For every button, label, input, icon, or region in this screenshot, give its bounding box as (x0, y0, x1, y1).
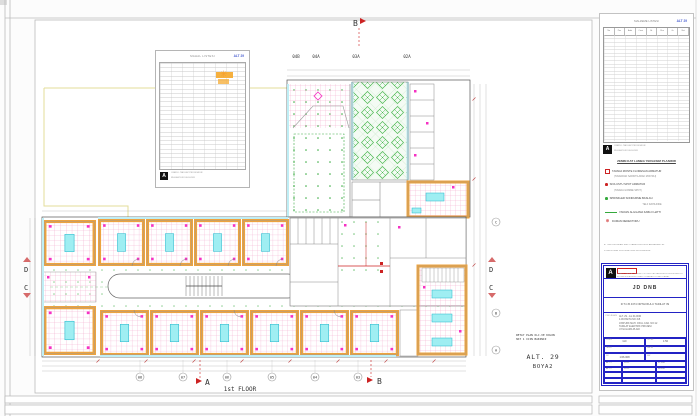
approval-line: BU PAFTA IDARENIN ONAYI OLMADAN COGALTIL… (617, 276, 683, 279)
tb-cell: NO1:06.008 (604, 353, 645, 361)
legend-item: YANGIN ALGILAMA KABLO HATTI (605, 211, 690, 214)
tb-cell: TARIH (604, 346, 645, 354)
plan-note-2: HAT 1 ICIN BAKINIZ (516, 337, 547, 341)
svg-text:08: 08 (138, 375, 142, 379)
svg-text:C: C (489, 284, 493, 292)
project-address-label: PROJE ADI (604, 313, 619, 337)
col-header: Gr (668, 28, 679, 35)
stamp-note: ONAYLI: TADILAT PROJESIDIR (614, 145, 690, 148)
tb-cell: CIZENGD (604, 338, 645, 346)
tb-cell: OLCEK1:50 (645, 338, 686, 346)
stamp-logo-icon: A (603, 145, 612, 154)
svg-text:07: 07 (181, 375, 185, 379)
svg-text:03A: 03A (352, 54, 360, 59)
tb-cell-value: GD (623, 340, 627, 343)
section-triangle-icon (23, 293, 31, 298)
tb-cell-label: OLCEK (647, 339, 653, 341)
sprinkler-icon (605, 197, 608, 200)
tb-cell-label: KAT (647, 355, 651, 357)
classroom (302, 312, 348, 355)
classroom (45, 222, 95, 265)
material-schedule-table: No Poz Adet Cinsi Br Olcu Gr Not (603, 27, 690, 143)
material-schedule-rows (604, 35, 689, 141)
upper-block (287, 80, 470, 217)
col-header: Olcu (657, 28, 668, 35)
title-block: A ONAYLI: TADILAT TESISAT PROJESI KAPSAM… (601, 263, 689, 386)
small-room (400, 310, 418, 356)
highlighted-cell (218, 79, 229, 84)
legend-heading: ZEMIN KAT LAMBA YERLESIM PLANIDIR (600, 159, 693, 163)
project-name: R.T.C.B 4374 ORTAOKULU TADILAT ISI (604, 298, 686, 313)
stamp-note: RUHSAT EKI DEGILDIR (171, 177, 243, 180)
col-header: No (604, 28, 615, 35)
room-schedule-rows (159, 62, 246, 170)
tb-cell: KAT (645, 353, 686, 361)
stamp-note: ONAYLI: TADILAT PROJESIDIR (171, 172, 243, 175)
service-rooms (352, 182, 408, 217)
footer-strips (5, 396, 692, 414)
legend-item-label: TAVANA MONTE FLORESAN ARMATUR (612, 170, 661, 173)
stamp-logo-icon: A (160, 172, 168, 180)
legend-item: TAVANA MONTE FLORESAN ARMATUR (605, 169, 690, 174)
svg-text:04B: 04B (292, 54, 300, 59)
svg-text:C: C (495, 220, 497, 224)
svg-text:04: 04 (313, 375, 317, 379)
stamp-note: RUHSAT EKI DEGILDIR (614, 150, 690, 153)
general-note: b. DETAYLAR ICIN ILGILI PAFTAYA BAKINIZ. (604, 250, 690, 252)
svg-text:C: C (24, 284, 28, 292)
svg-text:03: 03 (356, 375, 360, 379)
legend-item: SPRINKLER SONDURME BASLIGI (605, 197, 690, 200)
legend-item-label: SPRINKLER SONDURME BASLIGI (610, 197, 653, 200)
right-panel: MALZEME LISTESI ALT 29 No Poz Adet Cinsi… (599, 13, 694, 391)
firm-name: JD DNB (604, 279, 686, 297)
material-schedule-code: ALT 29 (677, 19, 687, 23)
fluorescent-fixture-icon (605, 169, 610, 174)
tb-cell-label: NO (606, 355, 609, 357)
classroom (352, 312, 398, 355)
legend-item-sub: TELF DAHILINDE (614, 203, 690, 206)
col-header: Adet (625, 28, 636, 35)
tall-room-right (418, 266, 466, 354)
legend-item-label: DUMAN DEDEKTORU (612, 220, 639, 223)
address-line: UYGULAMA PLANI (619, 328, 686, 331)
side-rooms-strip (410, 84, 434, 180)
revision-table: ALT 1 09.21 07.008 ALT 2 09.21 08.008 (604, 361, 686, 383)
title-block-header: A ONAYLI: TADILAT TESISAT PROJESI KAPSAM… (604, 266, 686, 279)
classroom (244, 221, 288, 265)
legend-item-label: SIVA USTU SPOT ARMATUR (610, 183, 646, 186)
legend-item-sub: (TAVANDAN SARKITILARAK MONTAJ) (614, 175, 690, 178)
col-header: Not (678, 28, 689, 35)
lower-wing (42, 217, 466, 357)
alt-sub: BOYA2 (533, 364, 554, 370)
alt-code: ALT. 29 (527, 353, 560, 361)
firm-logo-icon: A (606, 268, 616, 278)
svg-text:04A: 04A (312, 54, 320, 59)
legend-item: ⊕ DUMAN DEDEKTORU (605, 219, 690, 223)
svg-text:06: 06 (225, 375, 229, 379)
drawing-sheet: B A B D C D C 04B 04A 03A 02A 0 (0, 0, 700, 416)
svg-text:02A: 02A (403, 54, 411, 59)
rev-cell (604, 378, 622, 383)
orange-room-right (408, 182, 468, 217)
svg-text:05: 05 (270, 375, 274, 379)
diamond-ceiling-hall (351, 82, 409, 180)
col-header: Br (647, 28, 658, 35)
svg-text:B: B (377, 377, 382, 386)
revision-star-icon: ✳ (220, 70, 228, 79)
legend-item-sub: (TAVANA GOMME SPOT) (614, 189, 690, 192)
col-header: Poz (615, 28, 626, 35)
title-block-cells: CIZENGD OLCEK1:50 TARIH PAFTA NO1:06.008… (604, 338, 686, 362)
tb-cell-value: 1:06.008 (619, 356, 629, 359)
classroom (102, 312, 148, 355)
section-marker-left-dc: D C (23, 257, 31, 298)
tb-cell-label: CIZEN (606, 339, 612, 341)
floor-label: 1st FLOOR (224, 386, 257, 393)
section-triangle-icon (23, 257, 31, 262)
classroom (152, 312, 198, 355)
general-note: a. TUM OLCULER SANTIYEDE KONTROL EDILECE… (604, 244, 690, 246)
rev-cell (656, 378, 686, 383)
spot-fixture-icon (605, 183, 608, 186)
rev-cell (622, 378, 656, 383)
legend-item-label: YANGIN ALGILAMA KABLO HATTI (619, 211, 661, 214)
svg-text:D: D (24, 266, 28, 274)
col-header: Cinsi (636, 28, 647, 35)
cable-line-icon (605, 212, 617, 213)
room-schedule-table: MAHAL LISTESI ALT 29 ✳ A ONAYLI: TADILAT… (155, 50, 250, 188)
tb-cell-label: TARIH (606, 347, 612, 349)
legend-item: SIVA USTU SPOT ARMATUR (605, 183, 690, 186)
svg-text:B: B (495, 311, 497, 315)
project-address: PROJE ADI ALT. 29 - 1st FLOOR 4.06 PAFTA… (604, 313, 686, 338)
svg-text:A: A (205, 378, 210, 387)
classroom (202, 312, 248, 355)
tb-cell: PAFTA (645, 346, 686, 354)
svg-text:B: B (353, 19, 358, 28)
svg-text:D: D (489, 266, 493, 274)
room-schedule-code: ALT 29 (234, 54, 244, 58)
smoke-detector-icon: ⊕ (605, 219, 610, 223)
tb-cell-value: 1:50 (663, 340, 668, 343)
classroom (45, 308, 95, 354)
tb-cell-label: PAFTA (647, 347, 653, 349)
classroom (100, 221, 144, 265)
classroom (148, 221, 192, 265)
classroom (196, 221, 240, 265)
classroom (252, 312, 298, 355)
